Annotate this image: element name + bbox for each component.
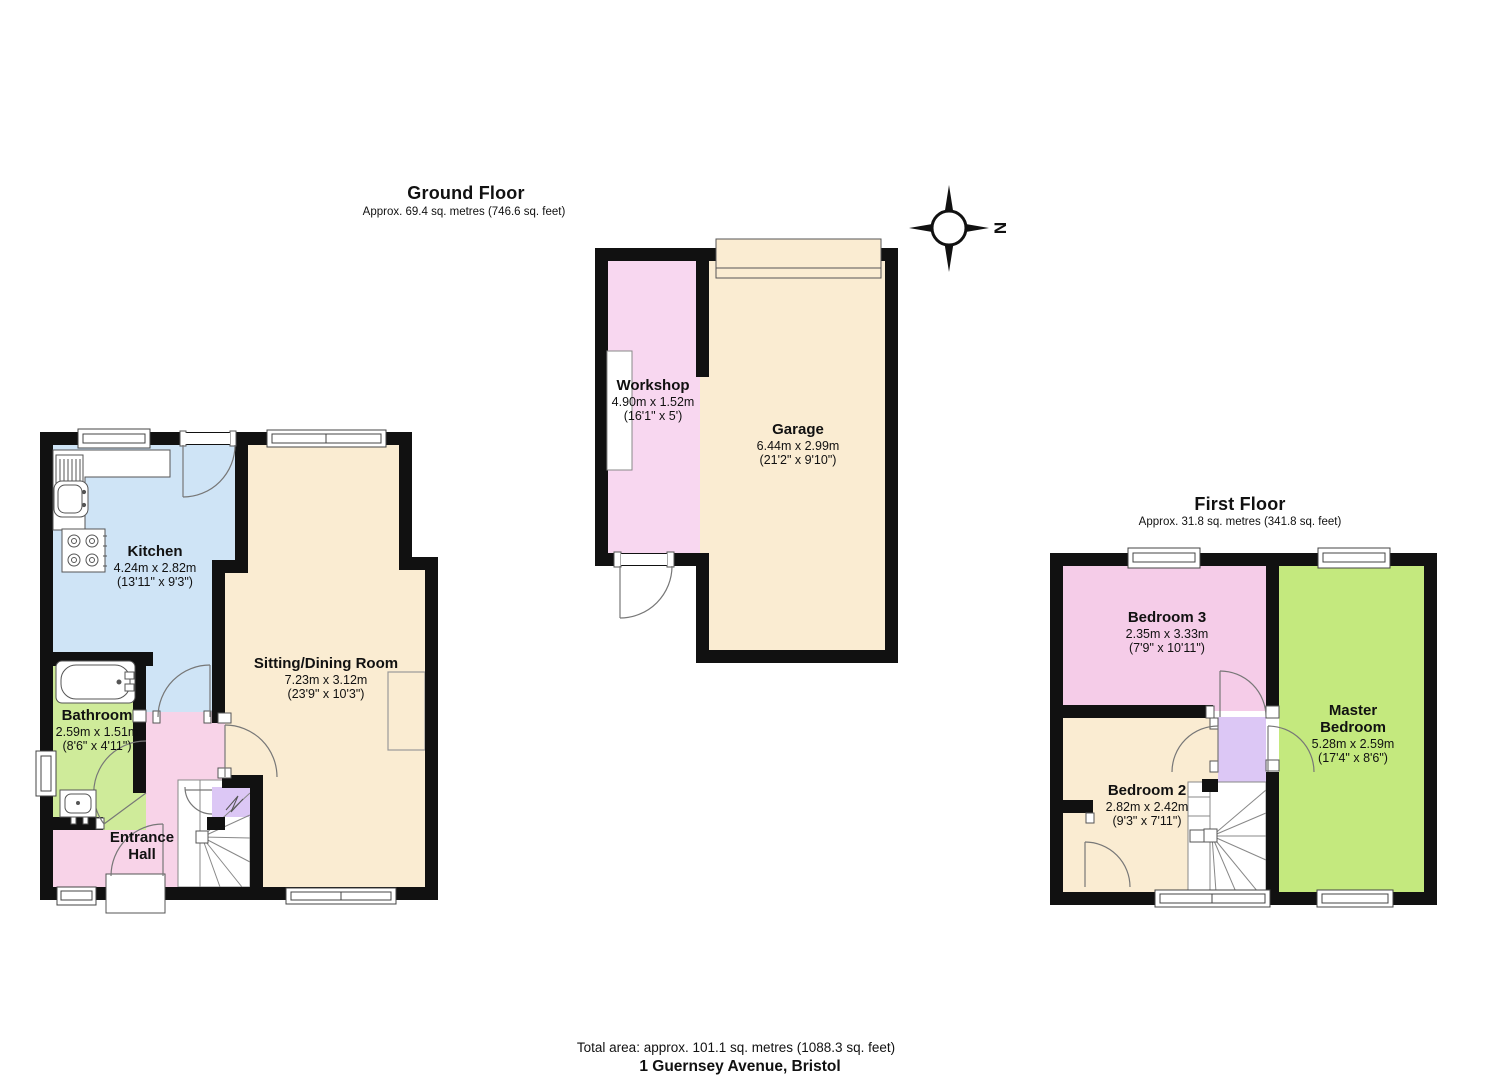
master-bottom-window — [1317, 890, 1393, 907]
bathtub-icon — [56, 661, 135, 703]
bedroom3-window — [1128, 548, 1200, 568]
garage-door — [716, 239, 881, 278]
ground-floor-plan — [36, 429, 438, 913]
first-floor-plan — [1050, 548, 1437, 907]
workshop-door — [620, 566, 672, 618]
sitting-bottom-window — [286, 888, 396, 904]
garage-block-plan — [595, 239, 898, 663]
sink-icon — [54, 481, 88, 517]
understairs-cupboard-area — [212, 787, 252, 817]
workbench — [607, 351, 632, 470]
bathroom-window — [36, 751, 56, 796]
master-bedroom-area — [1279, 566, 1424, 892]
garage-room-area — [700, 261, 885, 650]
workshop-door-jambs — [614, 552, 674, 567]
compass-icon: N — [909, 185, 1010, 272]
stairs-bottom-window — [1155, 890, 1270, 907]
front-door-recess — [106, 874, 165, 913]
compass-north-label: N — [991, 222, 1010, 234]
ground-floor-stairs — [178, 780, 252, 887]
hall-small-window — [57, 887, 96, 905]
first-floor-stairs — [1188, 782, 1266, 892]
hob-icon — [62, 529, 107, 572]
bedroom3-room-area — [1063, 566, 1266, 711]
landing-area — [1218, 717, 1266, 782]
kitchen-window — [78, 429, 150, 448]
sitting-top-window — [267, 430, 386, 447]
master-top-window — [1318, 548, 1390, 568]
floorplan-canvas: N — [0, 0, 1485, 1080]
